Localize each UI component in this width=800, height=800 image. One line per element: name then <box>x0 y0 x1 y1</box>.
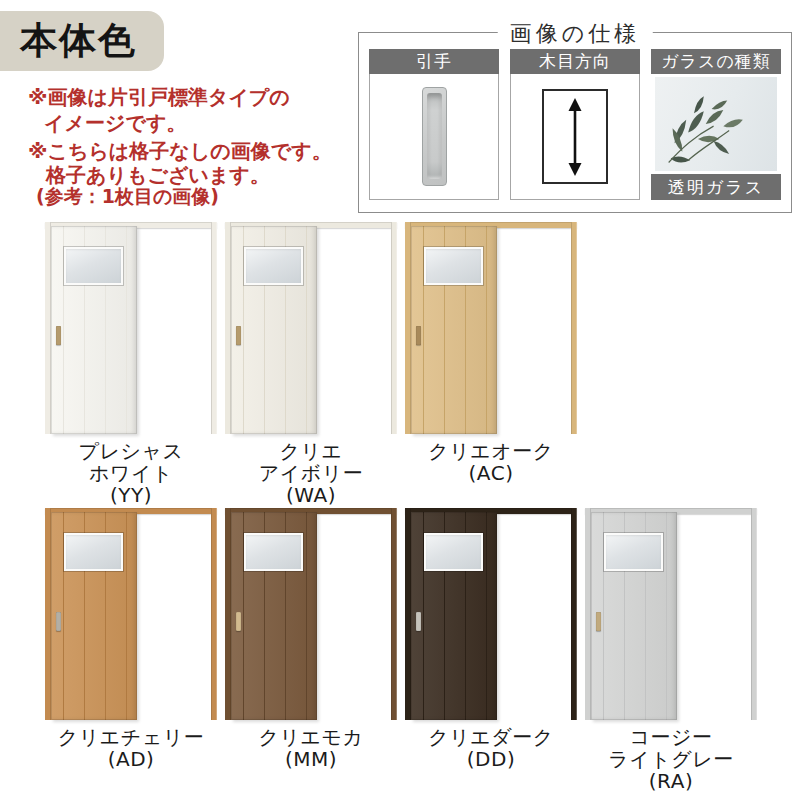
door-swatch-crie-mocha: クリエモカ(MM) <box>225 508 397 720</box>
spec-panel-grain-header: 木目方向 <box>510 49 640 74</box>
note-line: イメージです。 <box>44 110 186 137</box>
door-glass-window <box>424 533 483 571</box>
door-color-label: クリエチェリー(AD) <box>31 726 231 770</box>
plant-leaves-graphic <box>655 77 777 171</box>
door-color-label: クリエモカ(MM) <box>211 726 411 770</box>
door-glass-window <box>604 533 663 571</box>
spec-box-title: 画像の仕様 <box>498 19 653 49</box>
door-pull-handle <box>56 326 61 345</box>
door-pull-handle <box>416 326 421 345</box>
spec-panel-handle: 引手 <box>369 49 499 200</box>
door-panel <box>591 512 677 720</box>
door-frame-right <box>571 508 577 720</box>
door-pull-handle <box>236 326 241 345</box>
door-frame-right <box>211 508 217 720</box>
door-pull-handle <box>56 612 61 631</box>
door-glass-window <box>244 247 303 285</box>
door-swatch-crie-dark: クリエダーク(DD) <box>405 508 577 720</box>
door-swatch-crie-oak: クリエオーク(AC) <box>405 222 577 434</box>
spec-panel-handle-header: 引手 <box>369 49 499 74</box>
door-color-label: クリエアイボリー(WA) <box>211 440 411 506</box>
grain-direction-box <box>542 89 608 184</box>
spec-panel-glass-header: ガラスの種類 <box>651 49 781 74</box>
spec-panel-glass-type: ガラスの種類 <box>651 49 781 200</box>
door-color-label: クリエオーク(AC) <box>391 440 591 484</box>
door-glass-window <box>244 533 303 571</box>
door-panel <box>411 512 497 720</box>
spec-panels: 引手 木目方向 ガラスの種類 <box>369 49 781 200</box>
door-panel <box>51 512 137 720</box>
door-swatch-cozy-light-gray: コージーライトグレー(RA) <box>585 508 757 720</box>
spec-panel-grain-direction: 木目方向 <box>510 49 640 200</box>
product-color-sheet: 本体色 ※画像は片引戸標準タイプの イメージです。 ※こちらは格子なしの画像です… <box>0 0 800 800</box>
door-glass-window <box>424 247 483 285</box>
recessed-pull-icon <box>422 87 447 186</box>
door-frame-right <box>391 222 397 434</box>
door-color-label: クリエダーク(DD) <box>391 726 591 770</box>
door-pull-handle <box>596 612 601 631</box>
door-panel <box>411 226 497 434</box>
vertical-double-arrow-icon <box>565 98 585 176</box>
glass-type-caption: 透明ガラス <box>651 174 781 200</box>
door-frame-right <box>751 508 757 720</box>
door-color-label: プレシャスホワイト(YY) <box>31 440 231 506</box>
plant-behind-glass-photo <box>655 77 777 171</box>
door-frame-right <box>571 222 577 434</box>
note-line: (参考：1枚目の画像) <box>36 184 219 210</box>
door-glass-window <box>64 247 123 285</box>
door-frame-right <box>391 508 397 720</box>
note-line: ※こちらは格子なしの画像です。 <box>28 138 332 165</box>
door-color-label: コージーライトグレー(RA) <box>571 726 771 792</box>
door-panel <box>231 226 317 434</box>
door-panel <box>231 512 317 720</box>
door-glass-window <box>64 533 123 571</box>
door-pull-handle <box>416 612 421 631</box>
door-panel <box>51 226 137 434</box>
door-swatch-crie-cherry: クリエチェリー(AD) <box>45 508 217 720</box>
door-swatch-precious-white: プレシャスホワイト(YY) <box>45 222 217 434</box>
door-frame-right <box>211 222 217 434</box>
door-swatch-crie-ivory: クリエアイボリー(WA) <box>225 222 397 434</box>
page-title-badge: 本体色 <box>0 11 164 71</box>
door-pull-handle <box>236 612 241 631</box>
note-line: ※画像は片引戸標準タイプの <box>28 84 290 111</box>
image-spec-box: 画像の仕様 引手 木目方向 <box>358 32 792 213</box>
